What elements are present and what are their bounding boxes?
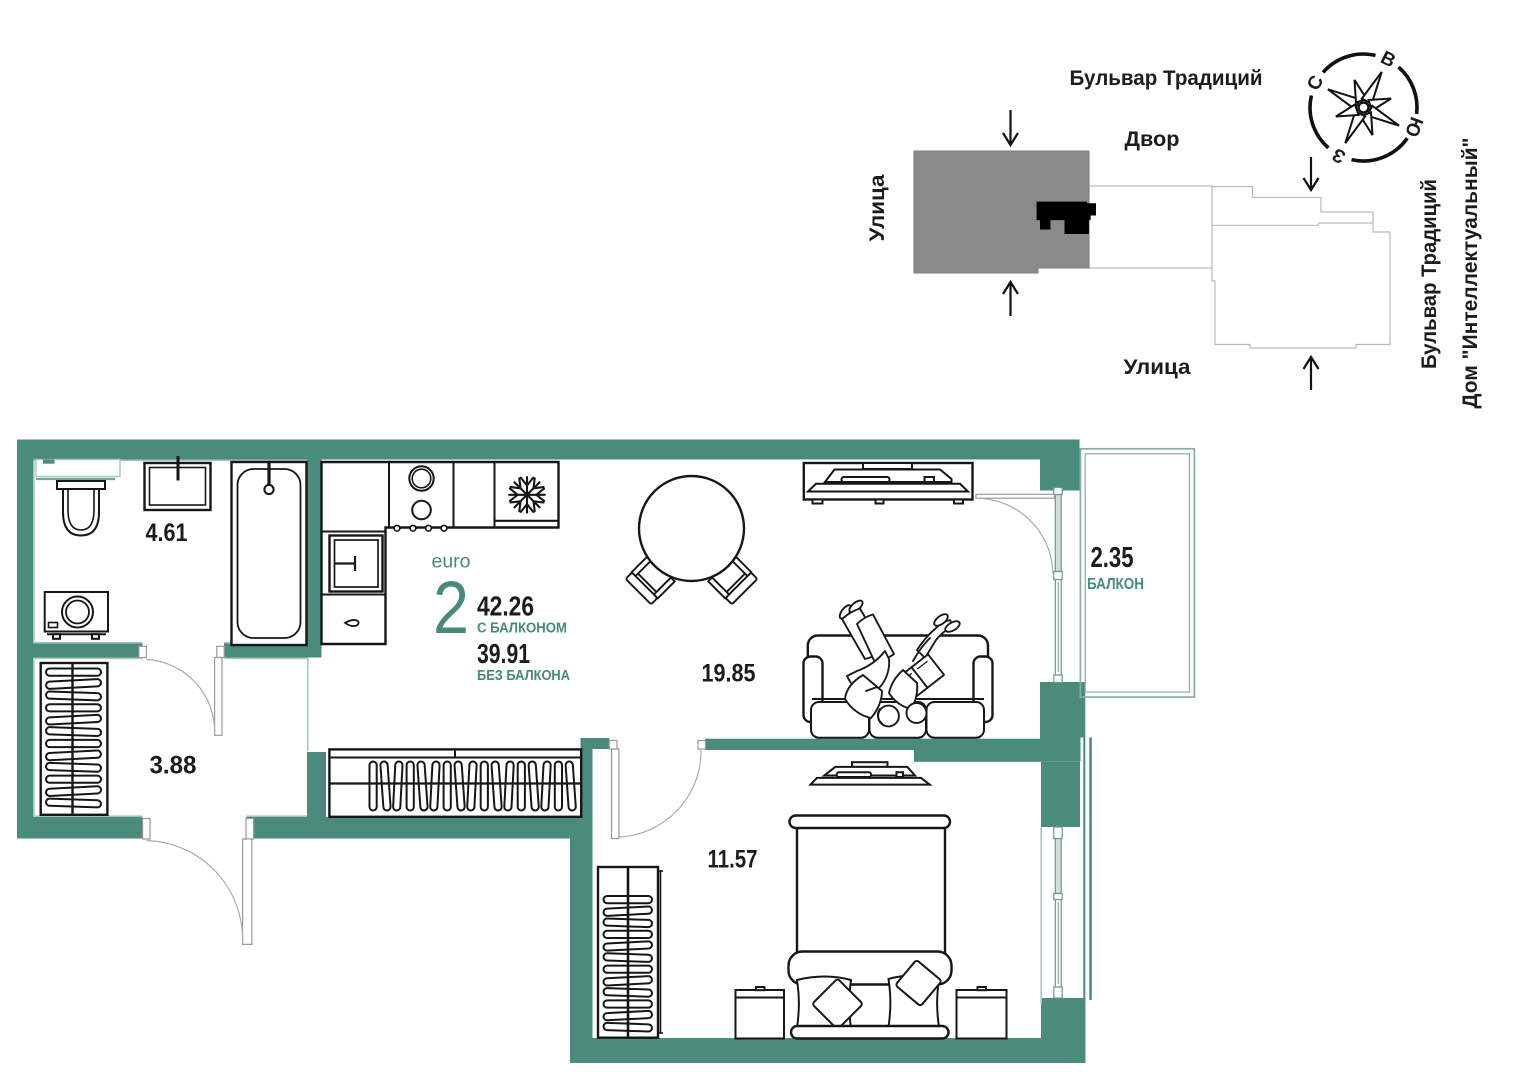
svg-text:2: 2 — [433, 566, 469, 649]
svg-text:4.61: 4.61 — [146, 519, 188, 547]
svg-text:Двор: Двор — [1125, 128, 1180, 151]
svg-text:Дом "Интеллектуальный": Дом "Интеллектуальный" — [1459, 138, 1482, 409]
svg-text:Улица: Улица — [1124, 356, 1191, 379]
svg-text:С БАЛКОНОМ: С БАЛКОНОМ — [477, 621, 567, 637]
svg-text:Бульвар Традиций: Бульвар Традиций — [1070, 67, 1263, 90]
svg-text:БАЛКОН: БАЛКОН — [1087, 576, 1144, 593]
svg-text:2.35: 2.35 — [1091, 542, 1134, 574]
svg-text:42.26: 42.26 — [477, 591, 534, 622]
svg-text:19.85: 19.85 — [702, 660, 756, 688]
svg-text:Улица: Улица — [866, 174, 889, 241]
svg-text:39.91: 39.91 — [477, 638, 530, 669]
svg-text:11.57: 11.57 — [708, 846, 758, 874]
svg-text:Бульвар Традиций: Бульвар Традиций — [1418, 179, 1441, 369]
svg-text:БЕЗ БАЛКОНА: БЕЗ БАЛКОНА — [477, 668, 570, 684]
svg-text:3.88: 3.88 — [150, 752, 197, 780]
